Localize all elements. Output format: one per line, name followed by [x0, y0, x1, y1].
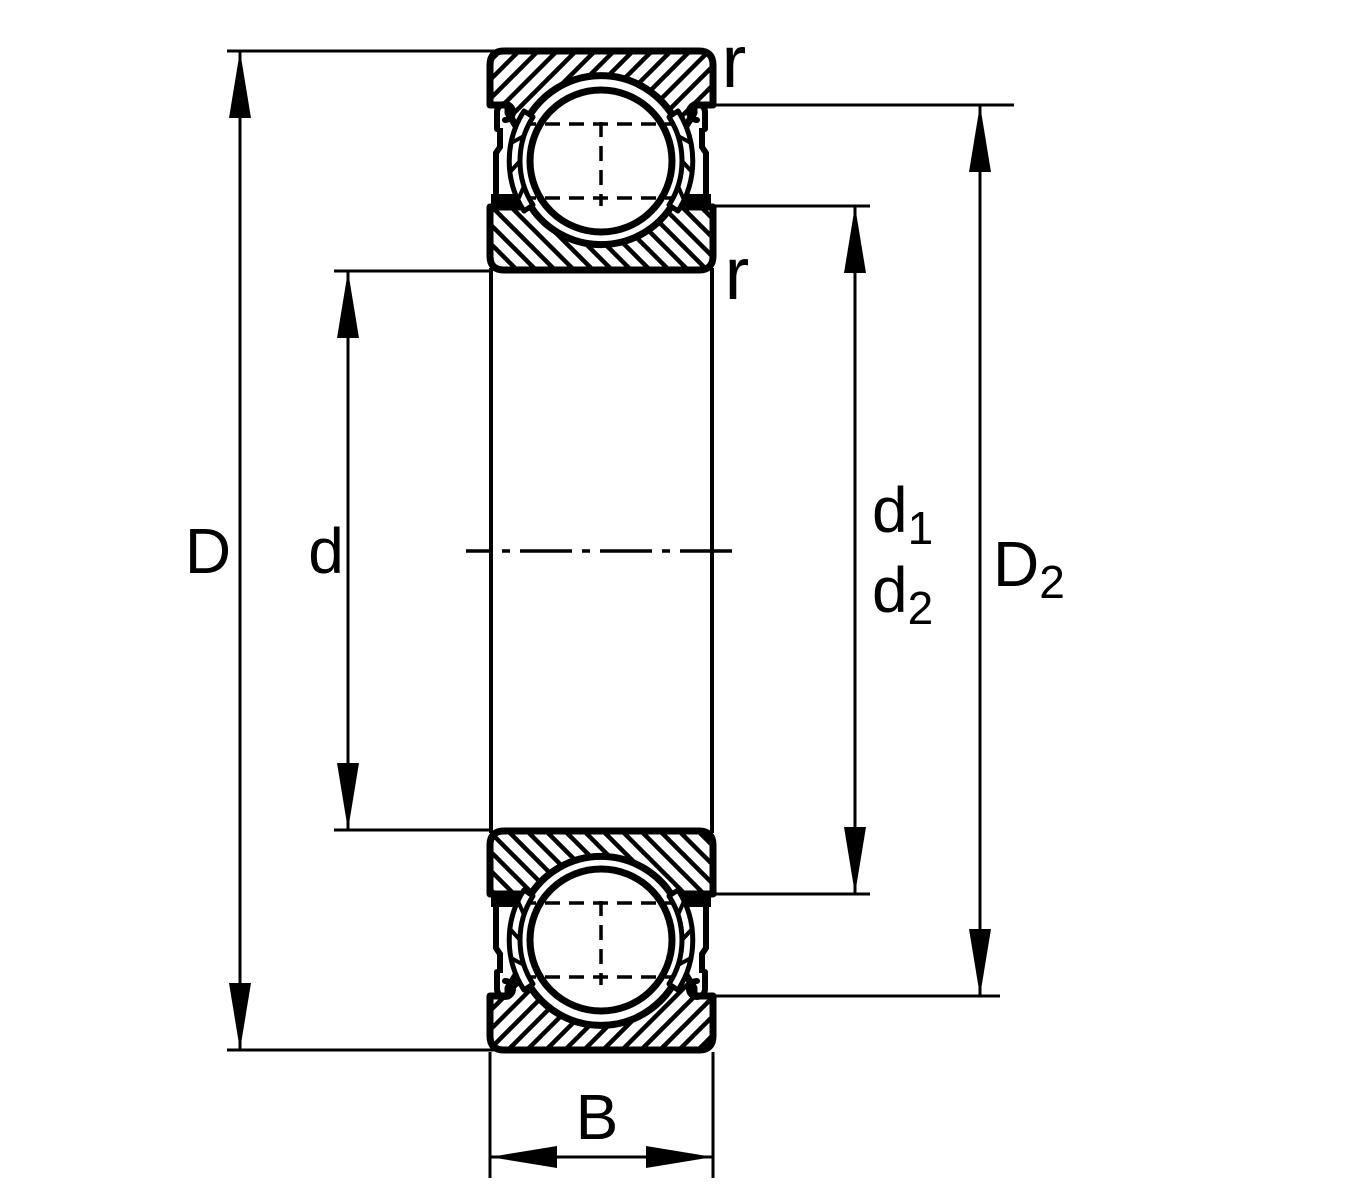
label-fillet-radius-bottom: r [725, 232, 750, 315]
arrowhead-up-icon [229, 51, 251, 118]
ball-bottom [521, 869, 681, 1011]
label-D2: D2 [993, 528, 1065, 608]
label-d2-subscript: 2 [908, 582, 934, 634]
label-d2: d2 [872, 554, 933, 634]
arrowhead-up-icon [969, 105, 991, 172]
label-fillet-radius-top: r [722, 20, 747, 103]
label-width: B [576, 1081, 619, 1153]
label-D2-base: D [993, 528, 1039, 600]
arrowhead-left-icon [490, 1146, 557, 1168]
arrowhead-down-icon [844, 827, 866, 894]
label-d1-subscript: 1 [908, 502, 934, 554]
arrowhead-down-icon [337, 763, 359, 830]
drawing-surface: D d d1 d2 D2 B r r [0, 0, 1350, 1200]
bearing-cross-section [466, 51, 737, 1050]
arrowhead-down-icon [969, 929, 991, 996]
label-outer-diameter: D [185, 515, 231, 587]
arrowhead-right-icon [646, 1146, 713, 1168]
arrowhead-down-icon [229, 983, 251, 1050]
label-d1: d1 [872, 474, 933, 554]
dimension-D [227, 51, 494, 1050]
ball-top [521, 90, 681, 232]
label-D2-subscript: 2 [1039, 556, 1065, 608]
label-bore-diameter: d [308, 515, 344, 587]
dimension-D2 [713, 105, 1014, 996]
arrowhead-up-icon [337, 271, 359, 338]
label-d1-base: d [872, 474, 908, 546]
arrowhead-up-icon [844, 206, 866, 273]
bearing-section-diagram: D d d1 d2 D2 B r r [0, 0, 1350, 1200]
label-d2-base: d [872, 554, 908, 626]
